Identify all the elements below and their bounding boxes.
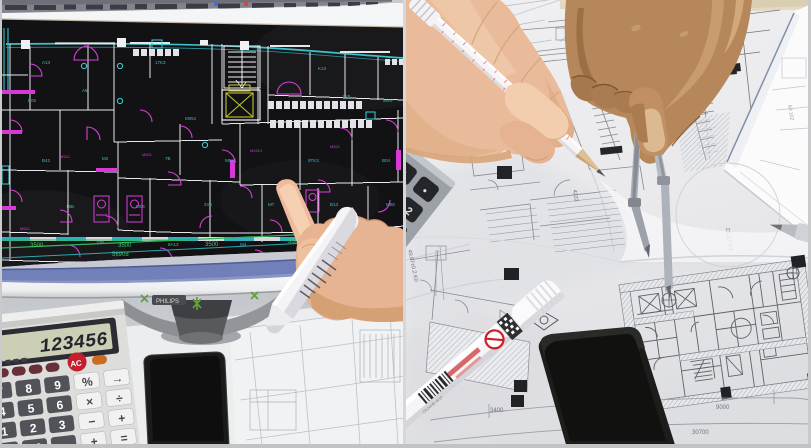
svg-text:M2: M2 — [102, 156, 109, 161]
svg-text:M521: M521 — [330, 144, 341, 149]
svg-text:9TK3: 9TK3 — [308, 158, 319, 163]
svg-text:M1521: M1521 — [250, 148, 263, 153]
svg-text:A6: A6 — [82, 88, 88, 93]
svg-text:30700: 30700 — [692, 430, 709, 436]
svg-text:%: % — [81, 374, 94, 389]
svg-text:9000: 9000 — [716, 405, 730, 411]
svg-text:56908: 56908 — [112, 252, 129, 258]
svg-text:M521: M521 — [225, 158, 237, 163]
svg-text:B42: B42 — [42, 158, 51, 163]
svg-text:3500: 3500 — [30, 243, 44, 249]
svg-text:A13: A13 — [42, 60, 51, 65]
svg-text:M051: M051 — [185, 116, 197, 121]
svg-text:M08: M08 — [386, 202, 395, 207]
svg-text:B04: B04 — [382, 158, 391, 163]
svg-text:17K3: 17K3 — [155, 60, 166, 65]
svg-text:→: → — [110, 371, 124, 386]
svg-text:M521: M521 — [60, 154, 71, 159]
svg-text:M7: M7 — [268, 202, 275, 207]
svg-text:8A13: 8A13 — [168, 242, 179, 247]
svg-text:56RF: 56RF — [383, 98, 394, 103]
svg-text:AC: AC — [70, 358, 83, 368]
svg-text:K13: K13 — [318, 66, 327, 71]
svg-text:B05: B05 — [28, 98, 37, 103]
svg-text:3500: 3500 — [205, 242, 219, 248]
svg-text:M521: M521 — [142, 152, 153, 157]
svg-text:16B: 16B — [66, 204, 74, 209]
svg-text:PHILIPS: PHILIPS — [156, 299, 179, 305]
svg-text:B13: B13 — [330, 202, 339, 207]
svg-text:7B: 7B — [165, 156, 171, 161]
svg-text:M521: M521 — [20, 226, 31, 231]
svg-text:3400: 3400 — [490, 408, 504, 414]
svg-text:1AB: 1AB — [342, 94, 351, 99]
svg-text:3500: 3500 — [118, 243, 132, 249]
svg-text:2V6: 2V6 — [204, 202, 213, 207]
